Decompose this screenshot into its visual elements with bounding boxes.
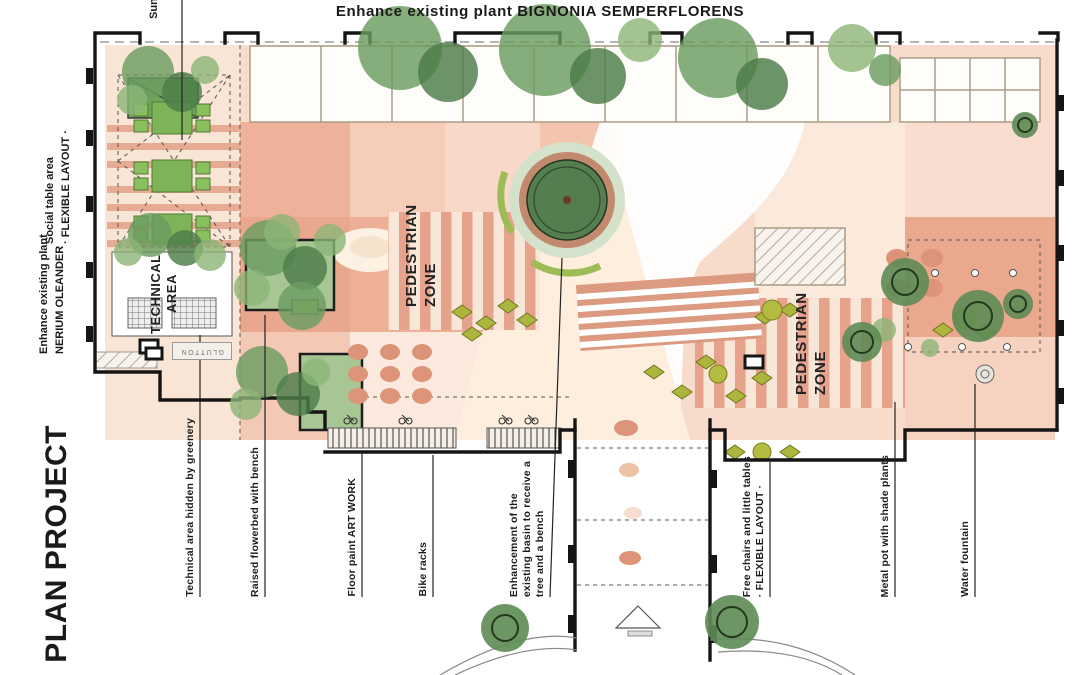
pz-left-line1: PEDESTRIAN (402, 212, 421, 307)
annotation-technical-area: Technical area hidden by greenery (184, 418, 197, 597)
pz-left-line2: ZONE (421, 212, 440, 307)
pz-right-line2: ZONE (811, 300, 830, 395)
annotation-bike-racks: Bike racks (417, 542, 430, 597)
annotation-line: Water fountain (959, 521, 972, 597)
annotation-line: existing basin to receive a (521, 461, 534, 597)
annotation-line: Raised flowerbed with bench (249, 447, 262, 597)
tech-line1: TECHNICAL (148, 254, 164, 334)
social-line1: Social table area (42, 128, 58, 244)
technical-area-label: TECHNICAL AREA (148, 254, 180, 334)
plant-line1: Enhance existing plant (36, 248, 52, 354)
annotation-metal-pot: Metal pot with shade plants (879, 455, 892, 598)
pedestrian-zone-right-label: PEDESTRIAN ZONE (792, 300, 830, 395)
pz-right-line1: PEDESTRIAN (792, 300, 811, 395)
annotation-water-fountain: Water fountain (959, 521, 972, 597)
tech-line2: AREA (164, 254, 180, 334)
annotation-line: Floor paint ART WORK (346, 478, 359, 597)
sunshade-label-text: Suns (146, 0, 162, 19)
glutton-bin-label: GLUTTON (172, 342, 232, 360)
annotation-line: Bike racks (417, 542, 430, 597)
annotation-line: Technical area hidden by greenery (184, 418, 197, 597)
plan-title: PLAN PROJECT (40, 425, 74, 663)
annotation-line: Metal pot with shade plants (879, 455, 892, 598)
annotation-basin-enhancement: Enhancement of the existing basin to rec… (508, 461, 547, 597)
annotation-line: Enhancement of the (508, 461, 521, 597)
annotation-line: · FLEXIBLE LAYOUT · (754, 456, 767, 597)
social-table-area-label: Social table area · FLEXIBLE LAYOUT · (42, 128, 74, 244)
social-line2: · FLEXIBLE LAYOUT · (58, 128, 74, 244)
annotation-raised-flowerbed: Raised flowerbed with bench (249, 447, 262, 597)
annotation-line: Free chairs and little tables (741, 456, 754, 597)
sheet-title: Enhance existing plant BIGNONIA SEMPERFL… (290, 3, 790, 20)
nerium-oleander-label: Enhance existing plant NERIUM OLEANDER (36, 248, 68, 354)
plant-line2: NERIUM OLEANDER (52, 248, 68, 354)
pedestrian-zone-left-label: PEDESTRIAN ZONE (402, 212, 440, 307)
annotation-free-chairs: Free chairs and little tables · FLEXIBLE… (741, 456, 767, 597)
annotation-line: tree and a bench (534, 461, 547, 597)
plan-project-sheet: Enhance existing plant BIGNONIA SEMPERFL… (0, 0, 1080, 675)
annotation-floor-paint: Floor paint ART WORK (346, 478, 359, 597)
sunshade-label: Suns (146, 0, 162, 19)
stairs (576, 272, 762, 351)
